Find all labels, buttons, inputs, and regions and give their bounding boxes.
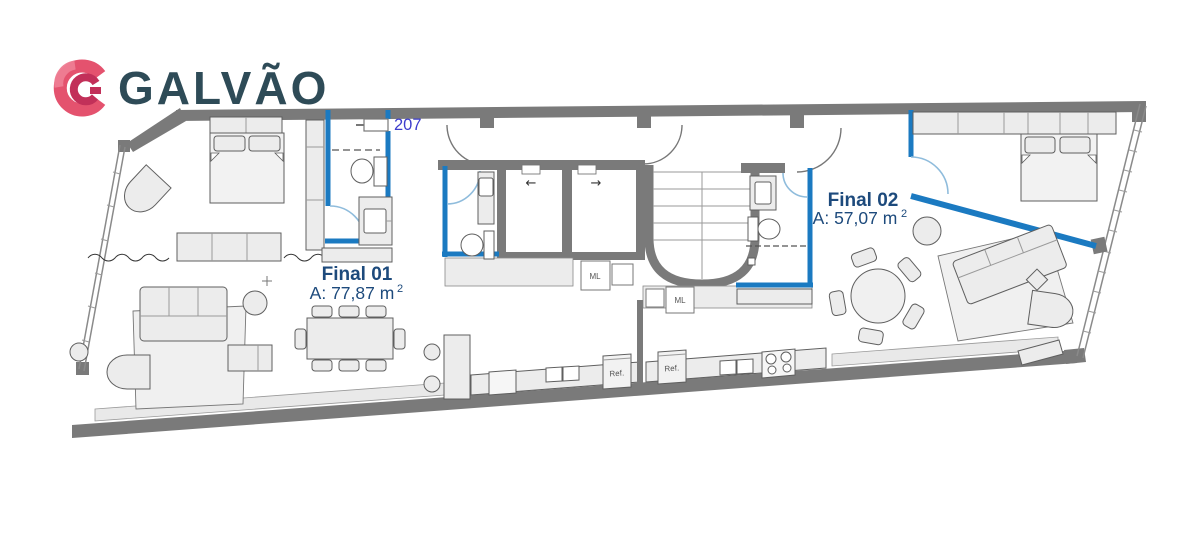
fridge-final-01: Ref. [603, 354, 631, 389]
laundry-counter-final-01: ML [445, 258, 633, 290]
washing-machine-label-final-02: ML [674, 296, 686, 305]
unit-final-01-name: Final 01 [322, 264, 393, 285]
wardrobe-final-01 [306, 120, 324, 250]
unit-final-02-area-exponent: 2 [901, 208, 907, 220]
staircase [649, 165, 755, 284]
armchair-bedroom-final-01 [117, 165, 171, 220]
toilet-ensuite-final-01 [351, 157, 387, 186]
floorplan-page: ← → ML ML [0, 0, 1200, 534]
plus-mark [262, 276, 272, 286]
bathroom-social-final-01 [442, 166, 499, 259]
dining-table-final-02 [829, 247, 926, 346]
unit-final-01-area: A: 77,87 m [310, 283, 395, 303]
brand-name: GALVÃO [118, 65, 329, 111]
kitchen-sink-final-01 [546, 367, 562, 382]
galvao-g-icon [52, 56, 116, 120]
side-table-round-final-02 [913, 217, 941, 245]
shelf-ensuite-final-01 [322, 248, 392, 262]
kitchen-divider-wall [637, 300, 643, 384]
fridge-label-final-01: Ref. [609, 369, 624, 379]
bed-final-01 [210, 117, 284, 203]
bathroom-ensuite-final-01 [322, 110, 392, 262]
entry-door-final-01 [356, 119, 388, 131]
vanity-social-final-01 [478, 172, 494, 224]
dining-table-final-01 [295, 306, 405, 371]
bed-final-02 [1021, 134, 1097, 201]
stool [424, 344, 440, 360]
sofa-final-01 [140, 287, 227, 341]
elevator-left-arrow-icon: ← [526, 176, 537, 191]
plant-final-01 [70, 343, 88, 361]
unit-final-01-area-exponent: 2 [397, 283, 403, 295]
shower-head-final-02 [748, 258, 755, 265]
wardrobe-final-02 [913, 112, 1116, 134]
logo: GALVÃO [52, 56, 329, 120]
fridge-final-02: Ref. [658, 350, 686, 384]
toilet-final-02 [748, 217, 780, 241]
elevator-right-arrow-icon: → [591, 176, 602, 191]
fridge-label-final-02: Ref. [664, 364, 679, 374]
vanity-ensuite-final-01 [359, 197, 392, 245]
shelf-final-02 [737, 289, 812, 304]
kitchen-sink-final-02 [720, 360, 736, 375]
stool [424, 376, 440, 392]
stove-final-02 [762, 349, 795, 378]
unit-number-207: 207 [394, 116, 422, 134]
washing-machine-label-final-01: ML [589, 272, 601, 281]
unit-final-02-area: A: 57,07 m [813, 208, 898, 228]
kitchen-island-final-01 [444, 335, 470, 399]
round-table-final-01 [243, 291, 267, 315]
dresser-final-01 [177, 233, 281, 261]
vanity-final-02 [750, 176, 776, 210]
side-table-final-01 [228, 345, 272, 371]
armchair-living-final-01 [107, 355, 150, 389]
